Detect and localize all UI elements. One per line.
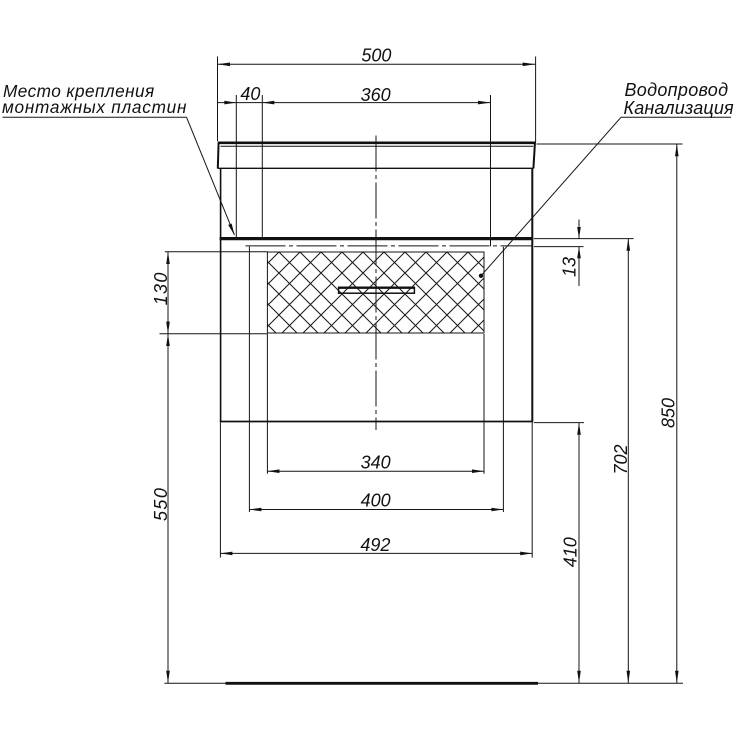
- svg-text:702: 702: [611, 444, 631, 474]
- svg-text:Водопровод: Водопровод: [625, 80, 729, 100]
- svg-text:492: 492: [360, 535, 390, 555]
- svg-text:400: 400: [361, 491, 391, 511]
- svg-text:850: 850: [658, 398, 678, 428]
- svg-text:130: 130: [151, 271, 171, 305]
- svg-text:360: 360: [361, 85, 391, 105]
- svg-text:500: 500: [361, 46, 391, 66]
- svg-text:410: 410: [560, 537, 580, 567]
- svg-text:монтажных пластин: монтажных пластин: [2, 97, 187, 117]
- svg-text:550: 550: [151, 487, 171, 521]
- svg-text:40: 40: [240, 84, 260, 104]
- svg-text:Канализация: Канализация: [624, 98, 734, 118]
- svg-text:13: 13: [560, 257, 580, 277]
- svg-text:340: 340: [361, 452, 391, 472]
